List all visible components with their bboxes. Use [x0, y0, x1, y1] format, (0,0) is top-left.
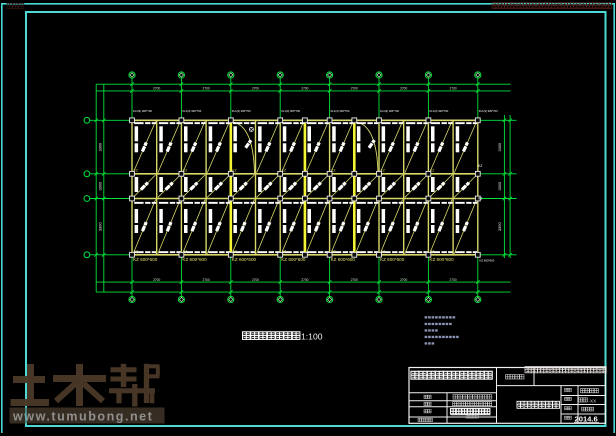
svg-text:3300: 3300 [98, 142, 103, 151]
svg-text:3300: 3300 [497, 222, 502, 231]
svg-text:2700: 2700 [400, 87, 407, 91]
svg-text:KZ: KZ [478, 164, 482, 168]
svg-text:2700: 2700 [153, 87, 160, 91]
svg-text:3300: 3300 [98, 181, 103, 190]
svg-text:1:100: 1:100 [301, 331, 323, 341]
svg-text:KZ 600*600: KZ 600*600 [182, 257, 207, 262]
svg-text:2700: 2700 [252, 87, 259, 91]
svg-text:KZ 600*600: KZ 600*600 [429, 257, 454, 262]
svg-text:KZ 600*600: KZ 600*600 [331, 257, 356, 262]
svg-text:3300: 3300 [497, 142, 502, 151]
svg-text:KL1(3) 300*700: KL1(3) 300*700 [232, 109, 251, 113]
svg-text:KL1(3) 300*700: KL1(3) 300*700 [133, 109, 152, 113]
svg-text:KZ 600*600: KZ 600*600 [232, 257, 257, 262]
svg-text:KZ 600*600: KZ 600*600 [281, 257, 306, 262]
svg-text:KL1(3) 300*700: KL1(3) 300*700 [380, 109, 399, 113]
svg-text:2700: 2700 [450, 87, 457, 91]
svg-text:KL1(3) 300*700: KL1(3) 300*700 [429, 109, 448, 113]
svg-text:3300: 3300 [98, 222, 103, 231]
svg-text:2700: 2700 [203, 278, 210, 282]
svg-text:2700: 2700 [252, 278, 259, 282]
svg-text:KL1(3) 300*700: KL1(3) 300*700 [281, 109, 300, 113]
svg-text:2700: 2700 [203, 87, 210, 91]
svg-text:2700: 2700 [400, 278, 407, 282]
svg-text:2700: 2700 [351, 87, 358, 91]
svg-text:2700: 2700 [351, 278, 358, 282]
svg-text:KZ: KZ [478, 197, 482, 201]
svg-text:-XX: -XX [589, 399, 597, 404]
svg-text:2700: 2700 [301, 87, 308, 91]
svg-text:2700: 2700 [450, 278, 457, 282]
svg-text:KZ 600*600: KZ 600*600 [133, 257, 158, 262]
svg-text:KL1(3) 300*700: KL1(3) 300*700 [479, 109, 498, 113]
svg-text:KZ 600*600: KZ 600*600 [480, 259, 495, 263]
svg-text:KL1(3) 300*700: KL1(3) 300*700 [182, 109, 201, 113]
svg-text:www.tumubong.net: www.tumubong.net [12, 410, 153, 424]
svg-text:2700: 2700 [301, 278, 308, 282]
svg-text:KZ 600*600: KZ 600*600 [380, 257, 405, 262]
svg-text:KL1(3) 300*700: KL1(3) 300*700 [331, 109, 350, 113]
svg-text:2700: 2700 [153, 278, 160, 282]
svg-text:3300: 3300 [497, 181, 502, 190]
